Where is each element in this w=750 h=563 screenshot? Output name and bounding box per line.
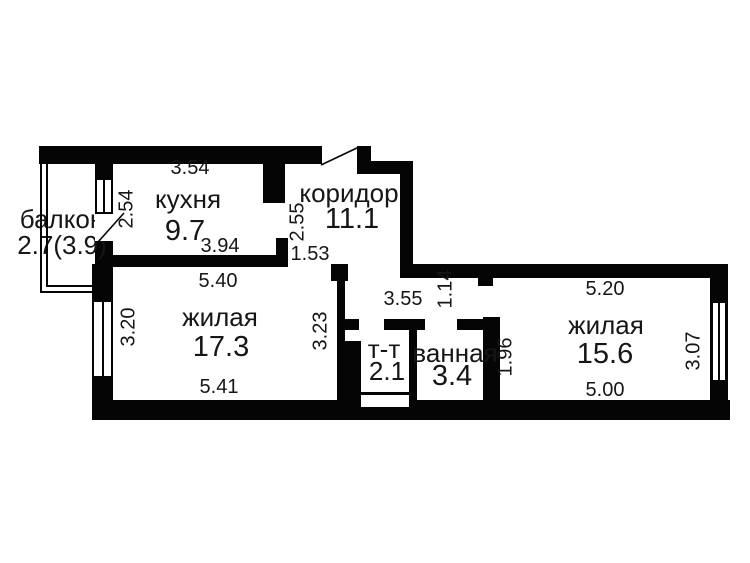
entrance-door-line [321, 147, 359, 165]
balcony-door-pointer-line [98, 213, 124, 242]
door-lines-layer [0, 0, 750, 563]
floor-plan: балкон 2.7(3.9) кухня 9.7 коридор 11.1 ж… [0, 0, 750, 563]
